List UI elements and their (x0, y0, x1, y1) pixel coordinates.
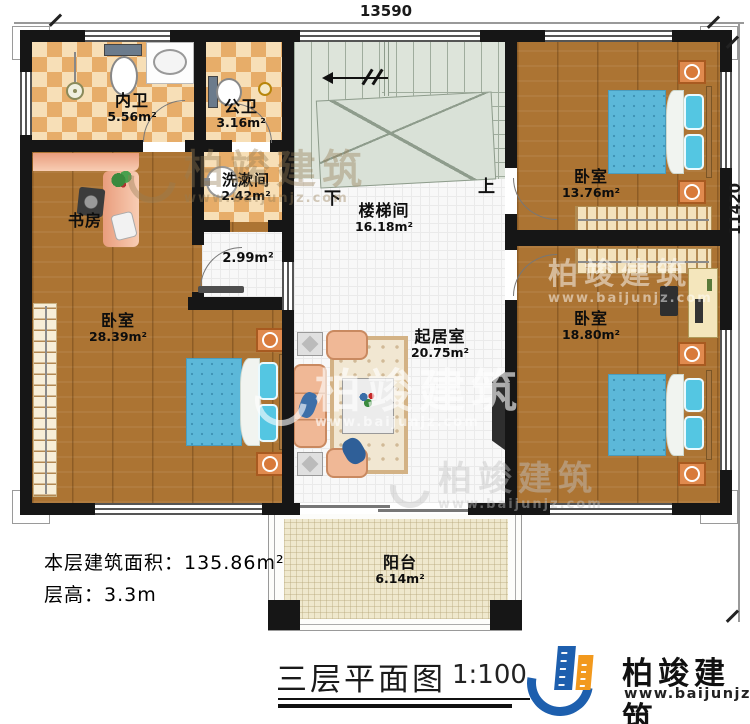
window (95, 503, 262, 515)
sliding-door (300, 504, 468, 514)
dresser-item (695, 299, 703, 323)
dimension-top: 13590 (336, 2, 436, 20)
stairs-landing (316, 91, 496, 188)
room-area: 16.18m² (355, 220, 413, 234)
brand-site: www.baijunjz.com (624, 686, 750, 702)
room-name: 内卫 (107, 92, 156, 110)
room-label-stairwell: 楼梯间16.18m² (355, 202, 413, 235)
title-underline-thick (278, 704, 512, 708)
room-area: 3.16m² (216, 116, 265, 130)
stairs-down-label: 下 (324, 184, 341, 209)
floor-height-note: 层高：3.3m (44, 580, 157, 607)
pillow (684, 134, 704, 170)
room-label-bedroom-topright: 卧室13.76m² (562, 168, 620, 201)
floor-area-note: 本层建筑面积：135.86m² (44, 548, 285, 575)
pillow (684, 416, 704, 450)
nightstand-lamp (678, 180, 706, 204)
wall (282, 42, 294, 222)
dimension-tick (726, 609, 739, 622)
flower-decor (357, 389, 379, 409)
wall (192, 152, 204, 245)
wall (194, 42, 206, 152)
stairs-up-label: 上 (478, 172, 495, 197)
wall (262, 503, 300, 515)
bed-quilt (608, 90, 666, 174)
nightstand-lamp (678, 60, 706, 84)
nightstand-lamp (678, 462, 706, 486)
wall (282, 222, 294, 262)
room-label-balcony: 阳台6.14m² (375, 554, 424, 587)
balcony-post (268, 600, 300, 630)
nightstand-lamp (678, 342, 706, 366)
plant-icon (110, 168, 134, 190)
brand-logo-building-icon (575, 655, 593, 690)
wall (185, 140, 232, 152)
room-name: 阳台 (375, 554, 424, 572)
window (300, 30, 480, 42)
bed-headboard (706, 86, 712, 178)
room-label-public-bath: 公卫3.16m² (216, 98, 265, 131)
shower-cord (74, 52, 76, 82)
room-label-master-bath: 内卫5.56m² (107, 92, 156, 125)
room-label-washroom: 洗漱间2.42m² (221, 172, 270, 204)
room-area: 6.14m² (375, 572, 424, 586)
room-area: 2.42m² (221, 189, 270, 203)
room-name: 书房 (68, 212, 102, 230)
tv-icon (492, 372, 505, 450)
side-table-decor (302, 456, 319, 473)
wardrobe (575, 206, 712, 232)
nightstand-lamp (256, 328, 284, 352)
shower-head-dot (73, 89, 77, 93)
window (550, 503, 672, 515)
stairs-direction-line (332, 77, 388, 79)
room-name: 卧室 (89, 312, 147, 330)
wall (170, 30, 300, 42)
bed-sheet-fold (240, 358, 260, 446)
window (720, 330, 732, 470)
room-name: 卧室 (562, 168, 620, 186)
nightstand-lamp (256, 452, 284, 476)
side-table-decor (302, 336, 319, 353)
shower-head-icon (66, 82, 84, 100)
room-label-living: 起居室20.75m² (411, 328, 469, 361)
wall (204, 220, 230, 232)
toilet-tank-icon (104, 44, 142, 56)
wall (505, 42, 517, 168)
balcony-post (490, 600, 522, 630)
pillow (684, 94, 704, 130)
room-area: 28.39m² (89, 330, 147, 344)
room-name: 楼梯间 (355, 202, 413, 220)
room-area: 18.80m² (562, 328, 620, 342)
dresser-item (707, 279, 712, 291)
wall (505, 300, 517, 503)
wall (20, 503, 95, 515)
tv-icon (660, 286, 678, 316)
wall (282, 310, 294, 503)
bed-sheet-fold (666, 374, 684, 456)
bed-sheet-fold (666, 90, 684, 174)
pillow (258, 404, 278, 442)
dimension-tick (49, 13, 62, 26)
room-area: 20.75m² (411, 346, 469, 360)
dimension-line-right (738, 22, 740, 622)
wall (20, 30, 32, 72)
bed-quilt (608, 374, 666, 456)
armchair (326, 330, 368, 360)
stairs-stringer (384, 42, 389, 96)
room-label-vestibule: 2.99m² (222, 252, 273, 267)
wall (20, 135, 32, 515)
sliding-door-panel (300, 505, 390, 508)
sliding-door-panel (378, 509, 468, 512)
closet (33, 303, 57, 497)
stairs-arrow-icon (322, 72, 333, 84)
wall (672, 503, 732, 515)
title-underline (278, 698, 530, 700)
window (85, 30, 170, 42)
room-label-bedroom-bottomright: 卧室18.80m² (562, 310, 620, 343)
door-leaf (198, 286, 244, 293)
pillow (258, 362, 278, 400)
room-name: 公卫 (216, 98, 265, 116)
dresser (688, 268, 718, 338)
bed-headboard (706, 370, 712, 460)
pillow (684, 378, 704, 412)
room-label-study: 书房 (68, 212, 102, 230)
window (545, 30, 672, 42)
bed-quilt (186, 358, 242, 446)
room-label-master-bedroom: 卧室28.39m² (89, 312, 147, 345)
window (20, 72, 32, 135)
side-table (297, 332, 323, 356)
drawing-title: 三层平面图 (276, 654, 446, 699)
room-area: 2.99m² (222, 252, 273, 267)
brand-logo-building-icon (554, 646, 576, 690)
opening (282, 262, 294, 310)
room-name: 卧室 (562, 310, 620, 328)
side-table (297, 452, 323, 476)
drawing-scale: 1:100 (452, 660, 527, 690)
wall (468, 503, 550, 515)
room-name: 起居室 (411, 328, 469, 346)
room-area: 5.56m² (107, 110, 156, 124)
shower-head-icon (258, 82, 272, 96)
wall (505, 230, 732, 246)
room-area: 13.76m² (562, 186, 620, 200)
floor-plan: 下 上 (0, 0, 750, 724)
dimension-line-top (14, 22, 744, 24)
wall (32, 140, 143, 152)
wall (720, 30, 732, 72)
room-name: 洗漱间 (221, 172, 270, 189)
sink-icon (153, 49, 187, 75)
coffee-table (342, 378, 394, 434)
dimension-right: 11420 (726, 164, 744, 254)
toilet-icon (110, 56, 138, 96)
wall (188, 297, 294, 310)
wall (480, 30, 545, 42)
window (720, 72, 732, 168)
